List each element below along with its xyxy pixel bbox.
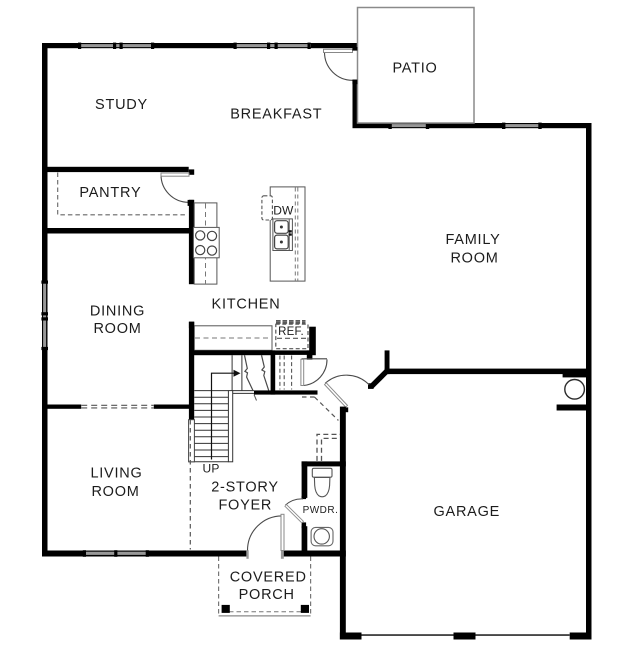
svg-text:ROOM: ROOM — [450, 250, 498, 266]
svg-text:UP: UP — [202, 462, 219, 476]
svg-text:PORCH: PORCH — [239, 587, 295, 603]
svg-text:LIVING: LIVING — [90, 466, 142, 482]
svg-text:FOYER: FOYER — [218, 497, 272, 513]
svg-text:BREAKFAST: BREAKFAST — [230, 107, 322, 123]
svg-text:DW: DW — [273, 203, 294, 217]
svg-text:REF.: REF. — [278, 326, 304, 338]
svg-text:KITCHEN: KITCHEN — [212, 297, 281, 313]
svg-text:COVERED: COVERED — [230, 570, 307, 586]
svg-text:2-STORY: 2-STORY — [211, 480, 279, 496]
svg-text:PWDR.: PWDR. — [303, 505, 339, 516]
svg-text:ROOM: ROOM — [93, 321, 141, 337]
svg-text:GARAGE: GARAGE — [434, 504, 501, 520]
svg-text:PANTRY: PANTRY — [79, 185, 141, 201]
svg-text:PATIO: PATIO — [392, 61, 437, 77]
svg-text:FAMILY: FAMILY — [446, 232, 501, 248]
svg-text:ROOM: ROOM — [91, 484, 139, 500]
svg-text:STUDY: STUDY — [95, 97, 148, 113]
svg-text:DINING: DINING — [90, 303, 145, 319]
